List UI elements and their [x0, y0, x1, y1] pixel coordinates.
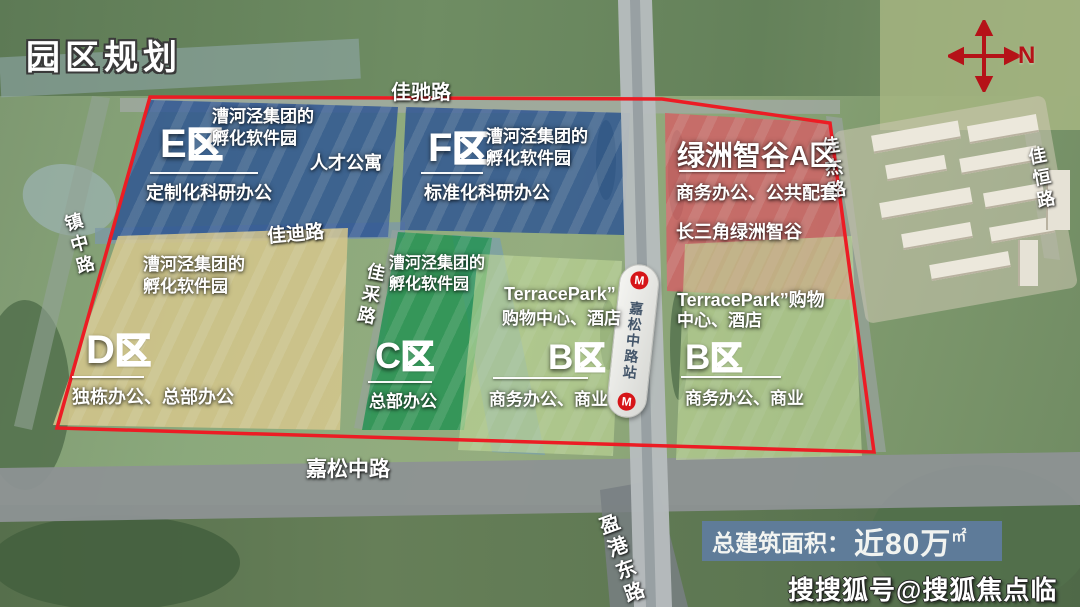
building-block [989, 217, 1055, 244]
building-block [929, 251, 1011, 281]
zone-e-function: 定制化科研办公 [146, 179, 272, 205]
zone-c-name: C区 [375, 338, 434, 374]
zone-f-name-solid: F [428, 126, 452, 170]
zone-d-function: 独栋办公、总部办公 [72, 383, 234, 409]
compass-icon [948, 20, 1020, 92]
zone-b1-brand-line2: 购物中心、酒店 [502, 304, 621, 329]
zone-d-org: 漕河泾集团的 孵化软件园 [143, 254, 245, 298]
building-block [967, 114, 1039, 144]
zone-e-divider [150, 172, 258, 174]
zone-c-org-line2: 孵化软件园 [389, 274, 485, 295]
zone-b2-brand-line2: 中心、酒店 [677, 306, 762, 331]
road-label-jiachi: 佳驰路 [391, 76, 451, 105]
building-block [871, 120, 961, 153]
zone-f-function: 标准化科研办公 [424, 179, 550, 205]
zone-f-name: F区 [428, 128, 488, 168]
total-area-value: 近80万 [854, 519, 951, 563]
compass-north-label: N [1018, 42, 1035, 70]
zone-e-extra: 人才公寓 [310, 149, 382, 175]
road-label-jiadi: 佳迪路 [266, 217, 325, 249]
zone-c-name-solid: C [375, 335, 401, 376]
zone-b2-divider [681, 376, 781, 378]
zone-f-org: 漕河泾集团的 孵化软件园 [486, 126, 588, 170]
page-title: 园区规划 [26, 30, 182, 79]
zone-c-divider [368, 381, 432, 383]
zone-a-extra: 长三角绿洲智谷 [676, 218, 802, 244]
total-area-label: 总建筑面积： [712, 524, 850, 558]
metro-logo-icon: M [617, 392, 637, 412]
zone-f-divider [421, 172, 483, 174]
zone-b1-brand-line1: TerracePark” [504, 284, 616, 305]
zone-a-name: 绿洲智谷A区 [677, 134, 837, 174]
road-label-jiasong: 嘉松中路 [306, 453, 390, 483]
zone-e-name-solid: E [160, 122, 187, 166]
zone-f-name-hollow: 区 [452, 128, 488, 169]
zone-c-function: 总部办公 [369, 387, 437, 412]
forest-bottom-left [0, 515, 240, 607]
zone-c-org: 漕河泾集团的 孵化软件园 [389, 253, 485, 295]
road-label-yinggang: 盈港东路 [590, 510, 650, 607]
zone-b1-name: B区 [548, 340, 605, 375]
zone-c-org-line1: 漕河泾集团的 [389, 253, 485, 274]
station-name: 嘉松中路站 [619, 300, 647, 382]
total-area-unit: ㎡ [951, 525, 966, 546]
road-label-jiaheng: 佳恒路 [1022, 144, 1060, 214]
zone-e-org-line2: 孵化软件园 [212, 128, 314, 150]
building-block [885, 155, 947, 181]
zone-b2-function: 商务办公、商业 [685, 384, 804, 409]
forest-left [0, 300, 70, 490]
zone-a-divider [679, 170, 785, 172]
zone-d-divider [72, 376, 144, 378]
zone-b1-name-hollow: 区 [573, 340, 605, 376]
zone-b1-name-solid: B [548, 338, 573, 377]
zone-d-org-line1: 漕河泾集团的 [143, 254, 245, 276]
building-block [901, 222, 973, 250]
zone-b1-divider [493, 377, 588, 379]
watermark-text: 搜搜狐号@搜狐焦点临安站 [788, 570, 1080, 607]
zone-b2-name-solid: B [685, 338, 710, 377]
zone-d-org-line2: 孵化软件园 [143, 276, 245, 298]
total-area-box: 总建筑面积： 近80万 ㎡ [702, 521, 1002, 561]
building-block [879, 187, 973, 220]
zone-a-function: 商务办公、公共配套 [676, 179, 838, 205]
building-tower [1018, 240, 1038, 286]
road-label-zhenzhong: 镇中路 [58, 210, 100, 280]
zone-e-org: 漕河泾集团的 孵化软件园 [212, 106, 314, 150]
zone-c-name-hollow: 区 [401, 338, 434, 375]
zone-f-org-line1: 漕河泾集团的 [486, 126, 588, 148]
zone-d-name-hollow: 区 [115, 330, 151, 371]
zone-b2-name: B区 [685, 340, 742, 375]
zone-d-name-solid: D [86, 328, 115, 372]
zone-d-name: D区 [86, 330, 151, 370]
zone-f-fill [400, 100, 635, 240]
site-plan-canvas: M 嘉松中路站 M 园区规划 N E区 漕河泾集团的 孵化软件园 人才公寓 定制… [0, 0, 1080, 607]
zone-b1-function: 商务办公、商业 [489, 385, 608, 410]
metro-logo-icon: M [629, 270, 649, 290]
zone-f-org-line2: 孵化软件园 [486, 148, 588, 170]
zone-b2-name-hollow: 区 [710, 340, 742, 376]
zone-e-org-line1: 漕河泾集团的 [212, 106, 314, 128]
